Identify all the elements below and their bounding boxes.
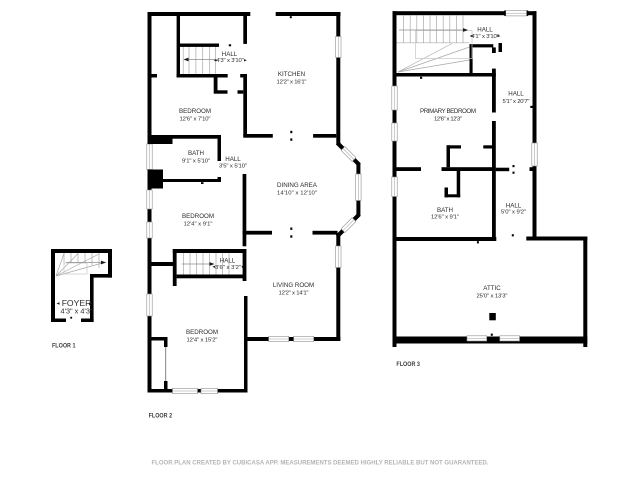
svg-text:9'1" x 5'10": 9'1" x 5'10" bbox=[182, 159, 210, 165]
svg-text:25'0" x 13'3": 25'0" x 13'3" bbox=[477, 294, 508, 300]
svg-text:BATH: BATH bbox=[188, 150, 204, 157]
svg-text:12'2" x 14'1": 12'2" x 14'1" bbox=[279, 291, 309, 297]
svg-text:HALL: HALL bbox=[225, 156, 241, 163]
svg-text:12'4" x 9'1": 12'4" x 9'1" bbox=[184, 222, 213, 228]
svg-text:HALL: HALL bbox=[508, 91, 524, 98]
svg-text:PRIMARY BEDROOM: PRIMARY BEDROOM bbox=[420, 108, 476, 115]
svg-text:FOYER: FOYER bbox=[62, 298, 92, 308]
svg-text:5'1" x 20'7": 5'1" x 20'7" bbox=[503, 99, 530, 105]
svg-text:HALL: HALL bbox=[477, 27, 493, 34]
svg-text:12'2" x 16'1": 12'2" x 16'1" bbox=[277, 80, 307, 86]
svg-text:12'4" x 15'2": 12'4" x 15'2" bbox=[187, 338, 218, 344]
svg-text:ATTIC: ATTIC bbox=[483, 285, 501, 292]
svg-text:BEDROOM: BEDROOM bbox=[186, 329, 218, 336]
svg-text:BEDROOM: BEDROOM bbox=[179, 108, 211, 115]
svg-text:4'3" x 3'10": 4'3" x 3'10" bbox=[216, 58, 244, 64]
svg-text:HALL: HALL bbox=[222, 51, 238, 58]
svg-text:12'6" x 7'10": 12'6" x 7'10" bbox=[180, 117, 211, 123]
svg-text:DINING AREA: DINING AREA bbox=[277, 182, 318, 189]
svg-text:4'3" x 4'3": 4'3" x 4'3" bbox=[61, 309, 94, 316]
svg-text:HALL: HALL bbox=[220, 258, 236, 265]
svg-text:KITCHEN: KITCHEN bbox=[278, 71, 305, 78]
svg-text:FLOOR PLAN CREATED BY CUBICASA: FLOOR PLAN CREATED BY CUBICASA APP. MEAS… bbox=[152, 459, 489, 466]
svg-text:BEDROOM: BEDROOM bbox=[182, 213, 214, 220]
svg-text:FLOOR 2: FLOOR 2 bbox=[149, 412, 173, 419]
svg-text:5'0" x 9'2": 5'0" x 9'2" bbox=[501, 209, 526, 215]
svg-text:FLOOR 1: FLOOR 1 bbox=[52, 343, 76, 350]
svg-text:4'1" x 3'10": 4'1" x 3'10" bbox=[471, 34, 499, 40]
svg-text:3'6" x 3'2": 3'6" x 3'2" bbox=[215, 265, 241, 271]
svg-text:3'5" x 5'10": 3'5" x 5'10" bbox=[219, 164, 247, 170]
svg-text:14'10" x 12'10": 14'10" x 12'10" bbox=[277, 191, 317, 197]
svg-text:12'6" x 9'1": 12'6" x 9'1" bbox=[431, 215, 459, 221]
svg-text:12'6" x 12'3": 12'6" x 12'3" bbox=[434, 116, 462, 122]
svg-text:LIVING ROOM: LIVING ROOM bbox=[273, 282, 314, 289]
svg-text:FLOOR 3: FLOOR 3 bbox=[396, 361, 420, 368]
svg-text:BATH: BATH bbox=[437, 207, 453, 214]
